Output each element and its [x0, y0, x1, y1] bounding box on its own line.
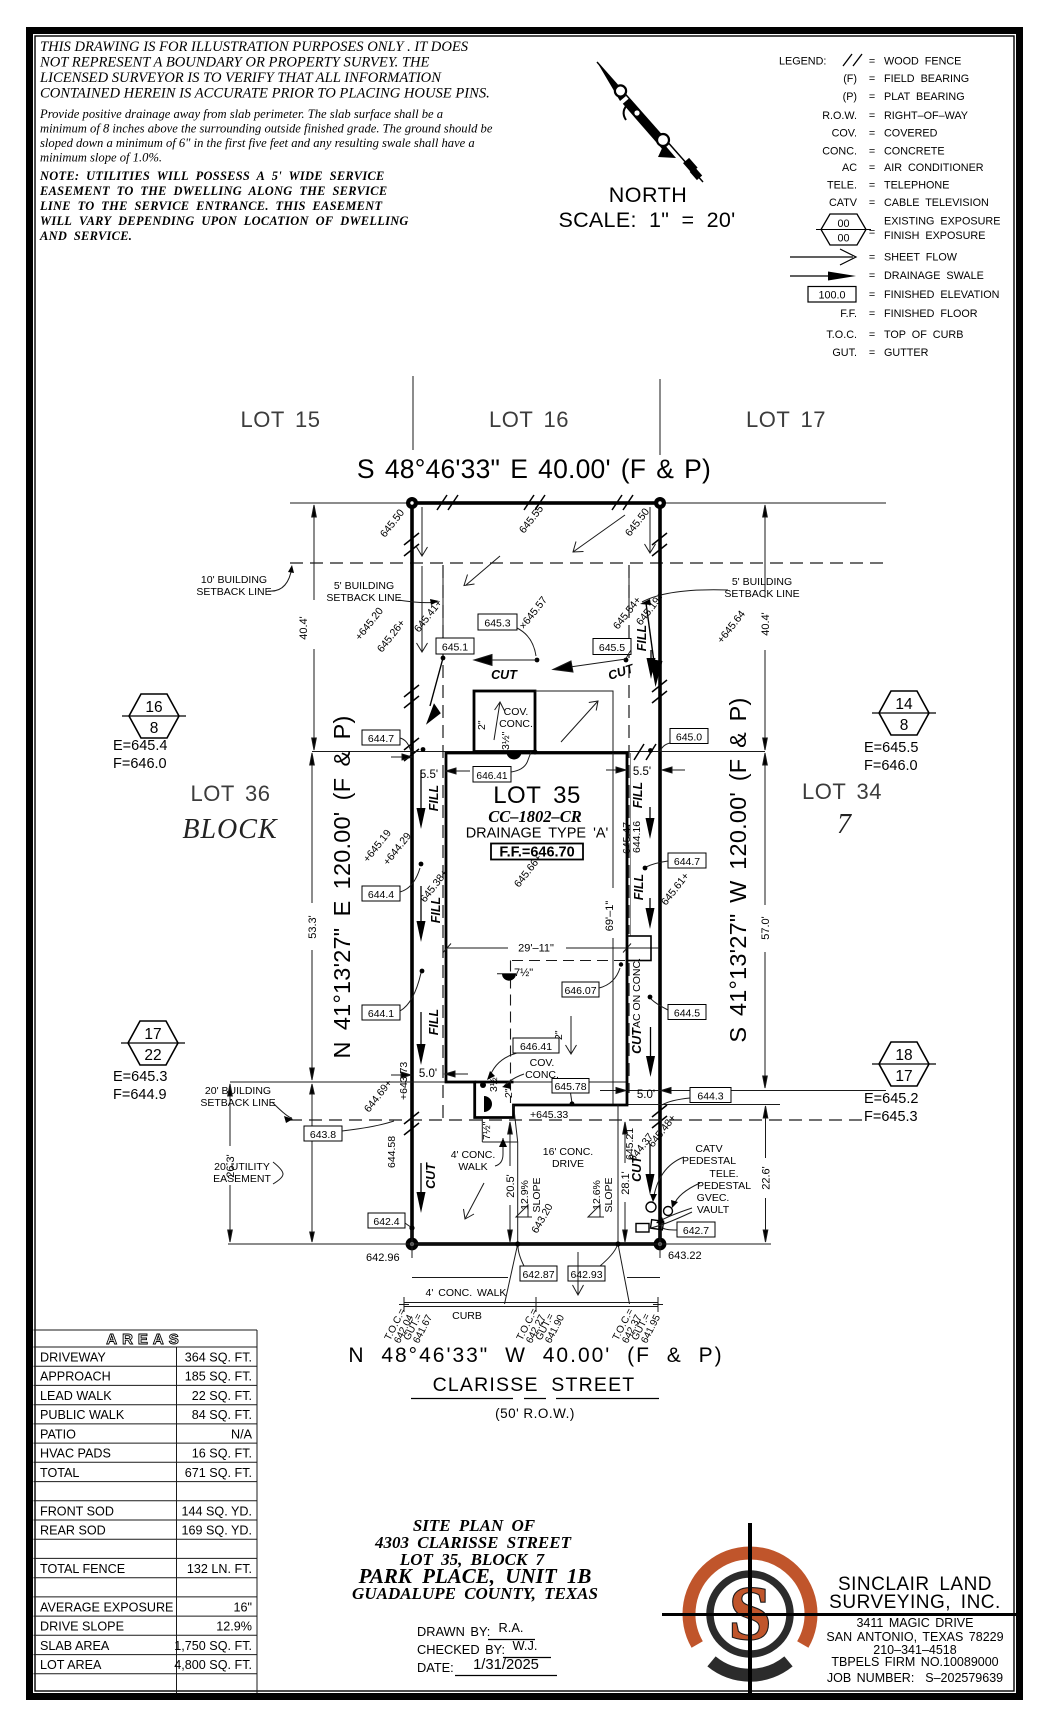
svg-text:7½": 7½" [514, 967, 533, 979]
svg-text:FILL: FILL [427, 785, 441, 811]
svg-text:SETBACK LINE: SETBACK LINE [326, 592, 401, 604]
svg-text:53.3': 53.3' [307, 915, 319, 939]
svg-text:40.4': 40.4' [298, 616, 310, 640]
svg-text:=: = [869, 197, 875, 209]
svg-text:646.41: 646.41 [476, 771, 507, 782]
svg-text:DRIVE: DRIVE [552, 1158, 584, 1170]
svg-text:DRAWN BY:: DRAWN BY: [417, 1624, 490, 1639]
svg-text:29'–11": 29'–11" [518, 943, 554, 955]
svg-text:SURVEYING, INC.: SURVEYING, INC. [829, 1592, 1001, 1613]
svg-text:84 SQ. FT.: 84 SQ. FT. [192, 1408, 252, 1422]
svg-text:20.5': 20.5' [505, 1174, 517, 1198]
svg-text:BLOCK: BLOCK [182, 814, 278, 845]
svg-text:E=645.3: E=645.3 [113, 1069, 167, 1085]
svg-text:PATIO: PATIO [40, 1427, 76, 1441]
svg-text:LOT AREA: LOT AREA [40, 1658, 102, 1672]
svg-text:F=645.3: F=645.3 [864, 1109, 918, 1125]
svg-text:COV.: COV. [504, 706, 529, 718]
svg-text:00: 00 [837, 233, 849, 245]
svg-text:(P): (P) [843, 91, 857, 103]
svg-text:12.9%: 12.9% [216, 1620, 252, 1634]
svg-text:FRONT SOD: FRONT SOD [40, 1504, 114, 1518]
svg-text:645.0: 645.0 [676, 732, 702, 744]
svg-text:644.58: 644.58 [386, 1136, 398, 1168]
svg-text:EASEMENT: EASEMENT [213, 1173, 271, 1185]
svg-text:16 SQ. FT.: 16 SQ. FT. [192, 1447, 252, 1461]
svg-text:TOP OF CURB: TOP OF CURB [884, 329, 963, 341]
svg-text:minimum of 8 inches above the: minimum of 8 inches above the surroundin… [40, 122, 493, 136]
svg-text:5.5': 5.5' [420, 769, 438, 781]
svg-text:SETBACK LINE: SETBACK LINE [724, 588, 799, 600]
svg-text:DATE:: DATE: [417, 1660, 454, 1675]
svg-text:26.3': 26.3' [225, 1154, 237, 1178]
svg-text:=: = [869, 347, 875, 359]
svg-text:CATV: CATV [695, 1143, 722, 1155]
svg-text:+645.33: +645.33 [530, 1109, 568, 1121]
svg-text:17: 17 [144, 1026, 161, 1043]
svg-text:THIS DRAWING IS FOR ILLUSTRATI: THIS DRAWING IS FOR ILLUSTRATION PURPOSE… [40, 39, 469, 55]
svg-text:644.16: 644.16 [631, 821, 643, 853]
svg-text:R.O.W.: R.O.W. [822, 110, 857, 122]
svg-text:W.J.: W.J. [513, 1638, 538, 1653]
svg-text:F=646.0: F=646.0 [864, 758, 918, 774]
svg-text:2": 2" [503, 1088, 515, 1098]
svg-text:HVAC PADS: HVAC PADS [40, 1447, 111, 1461]
svg-text:CUT: CUT [630, 1027, 644, 1054]
svg-text:sloped down a minimum of 6" in: sloped down a minimum of 6" in the first… [40, 136, 475, 150]
svg-text:CC–1802–CR: CC–1802–CR [488, 807, 582, 826]
svg-text:COV.: COV. [832, 128, 857, 140]
svg-text:645.3: 645.3 [484, 618, 510, 630]
svg-text:16: 16 [145, 699, 162, 716]
svg-text:DRIVE SLOPE: DRIVE SLOPE [40, 1620, 124, 1634]
svg-text:642.87: 642.87 [522, 1269, 554, 1281]
svg-text:3½": 3½" [488, 1073, 500, 1092]
svg-text:FIELD BEARING: FIELD BEARING [884, 73, 969, 85]
svg-text:AC ON CONC.: AC ON CONC. [631, 958, 643, 1028]
svg-text:S 48°46'33" E 40.00' (F & P): S 48°46'33" E 40.00' (F & P) [357, 454, 711, 484]
svg-text:CURB: CURB [452, 1310, 482, 1322]
svg-text:LEAD WALK: LEAD WALK [40, 1389, 112, 1403]
svg-text:16' CONC.: 16' CONC. [543, 1146, 593, 1158]
svg-text:=: = [869, 91, 875, 103]
svg-text:NOTE: UTILITIES WILL POSSES: NOTE: UTILITIES WILL POSSESS A 5' WIDE S… [39, 169, 385, 183]
svg-text:LOT 36: LOT 36 [191, 781, 271, 806]
svg-text:CONCRETE: CONCRETE [884, 146, 945, 158]
svg-text:=: = [869, 56, 875, 68]
svg-text:8: 8 [150, 720, 159, 737]
svg-text:WOOD FENCE: WOOD FENCE [884, 56, 961, 68]
svg-text:CONTAINED HEREIN IS ACCURATE P: CONTAINED HEREIN IS ACCURATE PRIOR TO PL… [40, 86, 490, 102]
svg-text:=: = [869, 308, 875, 320]
svg-text:22.6': 22.6' [761, 1166, 773, 1190]
svg-text:5' BUILDING: 5' BUILDING [732, 576, 792, 588]
svg-text:22 SQ. FT.: 22 SQ. FT. [192, 1389, 252, 1403]
svg-text:F=644.9: F=644.9 [113, 1087, 167, 1103]
svg-text:7: 7 [837, 809, 852, 840]
svg-text:642.96: 642.96 [366, 1252, 400, 1264]
svg-text:FINISHED FLOOR: FINISHED FLOOR [884, 308, 978, 320]
svg-text:645.78: 645.78 [554, 1081, 586, 1093]
svg-text:+643.73: +643.73 [398, 1062, 410, 1100]
svg-text:CABLE TELEVISION: CABLE TELEVISION [884, 197, 989, 209]
svg-text:3½": 3½" [500, 731, 512, 750]
svg-text:SAN ANTONIO, TEXAS 78229: SAN ANTONIO, TEXAS 78229 [826, 1630, 1003, 1644]
svg-text:144 SQ. YD.: 144 SQ. YD. [182, 1504, 252, 1518]
svg-text:DRAINAGE SWALE: DRAINAGE SWALE [884, 270, 984, 282]
svg-text:646.07: 646.07 [564, 985, 596, 997]
svg-text:=: = [869, 128, 875, 140]
svg-text:642.7: 642.7 [683, 1225, 709, 1237]
svg-text:644.3: 644.3 [697, 1091, 723, 1103]
svg-text:645.5: 645.5 [599, 642, 625, 654]
svg-text:NORTH: NORTH [609, 183, 688, 207]
svg-text:FINISHED ELEVATION: FINISHED ELEVATION [884, 289, 999, 301]
svg-text:PUBLIC WALK: PUBLIC WALK [40, 1408, 125, 1422]
svg-text:S 41°13'27" W 120.00' (F & P): S 41°13'27" W 120.00' (F & P) [725, 697, 751, 1042]
svg-text:5' BUILDING: 5' BUILDING [334, 580, 394, 592]
svg-text:169 SQ. YD.: 169 SQ. YD. [182, 1524, 252, 1538]
svg-text:=: = [869, 110, 875, 122]
svg-text:=: = [869, 329, 875, 341]
svg-text:CLARISSE STREET: CLARISSE STREET [433, 1374, 636, 1396]
svg-text:TOTAL: TOTAL [40, 1466, 79, 1480]
svg-text:642.93: 642.93 [570, 1269, 602, 1281]
svg-text:AND SERVICE.: AND SERVICE. [39, 229, 132, 243]
svg-text:SHEET FLOW: SHEET FLOW [884, 251, 958, 263]
svg-text:N/A: N/A [231, 1427, 253, 1441]
svg-text:10' BUILDING: 10' BUILDING [201, 574, 267, 586]
svg-text:=: = [869, 251, 875, 263]
svg-text:00: 00 [837, 218, 849, 230]
svg-text:EASEMENT TO THE DWELLING A: EASEMENT TO THE DWELLING ALONG THE SERVI… [39, 184, 387, 198]
svg-text:=: = [869, 270, 875, 282]
svg-text:(50' R.O.W.): (50' R.O.W.) [495, 1406, 575, 1421]
svg-text:COV.: COV. [530, 1057, 555, 1069]
svg-text:LOT 34: LOT 34 [802, 779, 882, 804]
svg-text:GVEC.: GVEC. [697, 1192, 730, 1204]
svg-text:=: = [869, 180, 875, 192]
svg-text:5.0': 5.0' [637, 1089, 655, 1101]
svg-text:=: = [869, 227, 875, 239]
svg-text:FINISH EXPOSURE: FINISH EXPOSURE [884, 230, 985, 242]
svg-text:SETBACK LINE: SETBACK LINE [196, 586, 271, 598]
svg-text:N 41°13'27" E 120.00' (F & P): N 41°13'27" E 120.00' (F & P) [329, 716, 355, 1059]
svg-text:LICENSED SURVEYOR IS TO VERIFY: LICENSED SURVEYOR IS TO VERIFY THAT ALL … [39, 70, 442, 86]
svg-text:4' CONC. WALK: 4' CONC. WALK [426, 1287, 507, 1299]
svg-text:100.0: 100.0 [818, 290, 845, 302]
svg-text:132 LN. FT.: 132 LN. FT. [187, 1562, 252, 1576]
svg-text:12.9%: 12.9% [519, 1180, 531, 1210]
svg-text:3411 MAGIC DRIVE: 3411 MAGIC DRIVE [856, 1616, 973, 1630]
svg-text:LOT 17: LOT 17 [746, 407, 826, 432]
svg-text:LOT 35: LOT 35 [493, 782, 581, 809]
svg-text:=: = [869, 73, 875, 85]
svg-text:COVERED: COVERED [884, 128, 938, 140]
svg-text:TBPELS FIRM NO.10089000: TBPELS FIRM NO.10089000 [831, 1655, 998, 1669]
svg-text:185 SQ. FT.: 185 SQ. FT. [185, 1370, 252, 1384]
svg-text:4' CONC.: 4' CONC. [451, 1149, 496, 1161]
svg-text:AVERAGE EXPOSURE: AVERAGE EXPOSURE [40, 1600, 173, 1614]
svg-text:F=646.0: F=646.0 [113, 756, 167, 772]
svg-text:14: 14 [895, 696, 913, 713]
svg-text:NOT REPRESENT A BOUNDARY OR PR: NOT REPRESENT A BOUNDARY OR PROPERTY SUR… [39, 55, 430, 71]
svg-text:WALK: WALK [458, 1161, 487, 1173]
svg-text:646.41: 646.41 [520, 1041, 552, 1053]
svg-text:TOTAL FENCE: TOTAL FENCE [40, 1562, 125, 1576]
svg-text:LOT 16: LOT 16 [489, 407, 569, 432]
svg-text:GUTTER: GUTTER [884, 347, 929, 359]
svg-text:FILL: FILL [429, 897, 443, 923]
svg-text:643.8: 643.8 [310, 1129, 336, 1141]
svg-text:TELEPHONE: TELEPHONE [884, 180, 949, 192]
svg-text:4,800 SQ. FT.: 4,800 SQ. FT. [174, 1658, 252, 1672]
svg-text:=: = [869, 289, 875, 301]
svg-text:TELE.: TELE. [827, 180, 857, 192]
svg-text:642.4: 642.4 [373, 1216, 399, 1228]
svg-text:N 48°46'33" W 40.00' (F & P): N 48°46'33" W 40.00' (F & P) [348, 1344, 723, 1367]
svg-text:CUT: CUT [424, 1162, 438, 1189]
svg-text:FILL: FILL [427, 1009, 441, 1035]
svg-text:1,750 SQ. FT.: 1,750 SQ. FT. [174, 1639, 252, 1653]
svg-text:CHECKED BY:: CHECKED BY: [417, 1642, 505, 1657]
svg-text:PEDESTAL: PEDESTAL [682, 1155, 736, 1167]
svg-text:VAULT: VAULT [697, 1204, 730, 1216]
svg-text:645.1: 645.1 [442, 642, 468, 654]
svg-text:AC: AC [842, 162, 857, 174]
svg-text:CUT: CUT [491, 668, 518, 682]
svg-text:JOB NUMBER: S–202579639: JOB NUMBER: S–202579639 [827, 1671, 1003, 1685]
svg-text:E=645.5: E=645.5 [864, 740, 918, 756]
svg-text:GUT.: GUT. [832, 347, 857, 359]
svg-text:SLOPE: SLOPE [603, 1177, 615, 1212]
svg-text:5.5': 5.5' [633, 766, 651, 778]
svg-text:EXISTING EXPOSURE: EXISTING EXPOSURE [884, 215, 1000, 227]
svg-text:=: = [869, 146, 875, 158]
svg-text:SCALE: 1" = 20': SCALE: 1" = 20' [558, 208, 735, 232]
svg-text:TELE.: TELE. [709, 1168, 738, 1180]
svg-text:WILL VARY DEPENDING UPON L: WILL VARY DEPENDING UPON LOCATION OF DWE… [40, 214, 409, 228]
svg-text:APPROACH: APPROACH [40, 1370, 111, 1384]
svg-text:69'–1": 69'–1" [604, 901, 616, 932]
svg-text:17: 17 [895, 1068, 912, 1085]
svg-text:644.7: 644.7 [674, 856, 700, 868]
svg-text:Provide positive drainage away: Provide positive drainage away from slab… [39, 107, 443, 121]
svg-text:SETBACK LINE: SETBACK LINE [200, 1097, 275, 1109]
svg-text:CONC.: CONC. [822, 146, 857, 158]
svg-text:22: 22 [144, 1047, 161, 1064]
svg-text:1/31/2025: 1/31/2025 [473, 1657, 539, 1673]
svg-text:GUADALUPE COUNTY, TEXAS: GUADALUPE COUNTY, TEXAS [352, 1584, 598, 1603]
svg-text:CATV: CATV [829, 197, 858, 209]
svg-text:T.O.C.: T.O.C. [826, 329, 857, 341]
svg-text:DRIVEWAY: DRIVEWAY [40, 1351, 106, 1365]
svg-text:643.22: 643.22 [668, 1250, 702, 1262]
svg-text:12.6%: 12.6% [591, 1180, 603, 1210]
svg-text:20' UTILITY: 20' UTILITY [214, 1161, 270, 1173]
svg-text:2": 2" [476, 720, 488, 730]
svg-text:40.4': 40.4' [760, 612, 772, 636]
svg-text:E=645.2: E=645.2 [864, 1091, 918, 1107]
svg-text:LINE TO THE SERVICE ENTRAN: LINE TO THE SERVICE ENTRANCE. THIS EASEM… [39, 199, 382, 213]
svg-text:R.A.: R.A. [499, 1620, 524, 1635]
svg-text:minimum slope of 1.0%.: minimum slope of 1.0%. [40, 151, 162, 165]
svg-text:16": 16" [234, 1600, 252, 1614]
svg-text:SLAB AREA: SLAB AREA [40, 1639, 110, 1653]
svg-text:F.F.: F.F. [840, 308, 857, 320]
svg-text:RIGHT–OF–WAY: RIGHT–OF–WAY [884, 110, 968, 122]
svg-text:PLAT BEARING: PLAT BEARING [884, 91, 965, 103]
svg-text:671 SQ. FT.: 671 SQ. FT. [185, 1466, 252, 1480]
svg-text:LOT 15: LOT 15 [241, 407, 321, 432]
svg-text:18: 18 [895, 1047, 912, 1064]
svg-text:E=645.4: E=645.4 [113, 738, 167, 754]
svg-text:FILL: FILL [632, 874, 646, 900]
svg-text:5.0': 5.0' [419, 1068, 437, 1080]
svg-text:PEDESTAL: PEDESTAL [697, 1180, 751, 1192]
svg-text:AREAS: AREAS [106, 1331, 184, 1348]
svg-text:644.4: 644.4 [368, 889, 394, 901]
svg-text:644.7: 644.7 [368, 733, 394, 745]
svg-text:644.1: 644.1 [368, 1008, 394, 1020]
svg-text:CONC.: CONC. [499, 718, 533, 730]
svg-text:(F): (F) [843, 73, 857, 85]
svg-text:FILL: FILL [631, 782, 645, 808]
svg-text:644.5: 644.5 [674, 1008, 700, 1020]
svg-text:8: 8 [900, 717, 909, 734]
svg-text:DRAINAGE TYPE 'A': DRAINAGE TYPE 'A' [466, 826, 609, 842]
svg-text:LEGEND:: LEGEND: [779, 56, 826, 68]
svg-text:364 SQ. FT.: 364 SQ. FT. [185, 1351, 252, 1365]
svg-text:=: = [869, 162, 875, 174]
svg-text:20' BUILDING: 20' BUILDING [205, 1085, 271, 1097]
svg-text:57.0': 57.0' [760, 916, 772, 940]
svg-text:FILL: FILL [635, 625, 649, 651]
svg-text:AIR CONDITIONER: AIR CONDITIONER [884, 162, 984, 174]
svg-text:REAR SOD: REAR SOD [40, 1524, 106, 1538]
